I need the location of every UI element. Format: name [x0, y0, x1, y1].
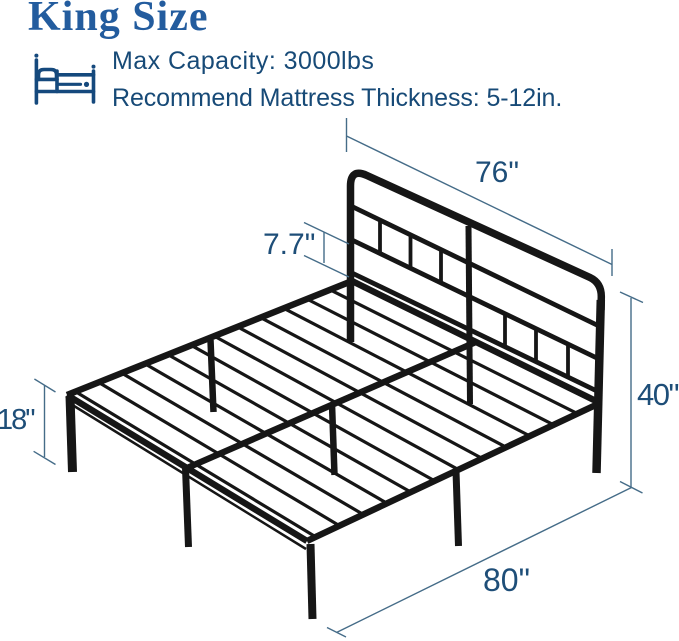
svg-text:Max Capacity: 3000lbs: Max Capacity: 3000lbs — [112, 47, 374, 75]
svg-text:80": 80" — [483, 562, 530, 598]
svg-text:7.7": 7.7" — [263, 228, 315, 261]
svg-text:King Size: King Size — [28, 0, 209, 40]
svg-text:18": 18" — [0, 404, 35, 436]
svg-text:76": 76" — [475, 156, 519, 189]
svg-text:Recommend Mattress Thickness:: Recommend Mattress Thickness: 5-12in. — [112, 84, 562, 112]
svg-text:40": 40" — [637, 377, 678, 412]
